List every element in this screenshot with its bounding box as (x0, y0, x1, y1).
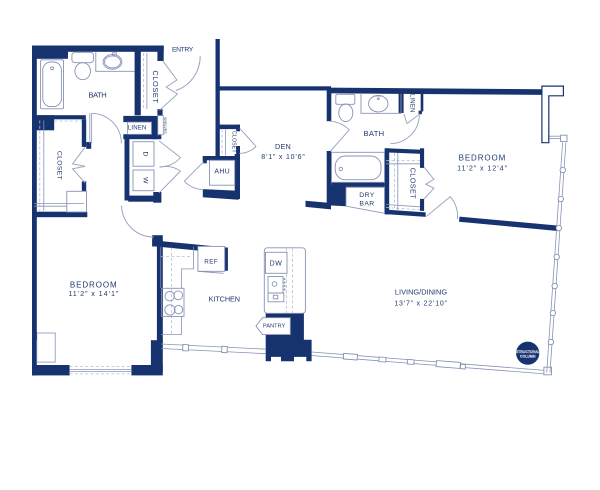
svg-text:BEDROOM: BEDROOM (459, 154, 507, 163)
svg-text:BEDROOM: BEDROOM (70, 281, 118, 290)
svg-text:AHU: AHU (214, 168, 230, 175)
svg-text:REF: REF (204, 258, 218, 265)
svg-text:BATH: BATH (88, 91, 106, 100)
svg-text:ENTRY: ENTRY (172, 46, 194, 53)
svg-text:11’2” x 12’4”: 11’2” x 12’4” (457, 163, 508, 172)
svg-text:D: D (142, 152, 149, 157)
svg-text:CLOSET: CLOSET (231, 131, 237, 153)
svg-text:COLUMN: COLUMN (520, 354, 536, 358)
svg-text:CLOSET: CLOSET (56, 151, 63, 180)
svg-text:STRUCTURAL: STRUCTURAL (516, 350, 541, 354)
svg-text:LINEN: LINEN (128, 126, 147, 132)
svg-text:SHELVES: SHELVES (163, 117, 167, 134)
svg-text:8’1” x 10’6”: 8’1” x 10’6” (261, 154, 305, 161)
svg-text:DRY: DRY (359, 192, 374, 199)
svg-text:DW: DW (270, 261, 283, 268)
svg-text:BAR: BAR (359, 200, 374, 207)
svg-text:PANTRY: PANTRY (263, 323, 286, 329)
svg-text:W: W (142, 177, 149, 184)
svg-text:11’2” x 14’1”: 11’2” x 14’1” (68, 289, 119, 298)
svg-text:KITCHEN: KITCHEN (209, 295, 240, 304)
svg-text:LINEN: LINEN (409, 94, 415, 113)
svg-text:13’7” x 22’10”: 13’7” x 22’10” (394, 300, 447, 307)
svg-text:DEN: DEN (275, 142, 291, 151)
svg-text:CLOSET: CLOSET (151, 70, 160, 103)
svg-text:LIVING/DINING: LIVING/DINING (395, 287, 447, 296)
svg-text:CLOSET: CLOSET (408, 168, 417, 200)
svg-text:BATH: BATH (364, 129, 385, 138)
